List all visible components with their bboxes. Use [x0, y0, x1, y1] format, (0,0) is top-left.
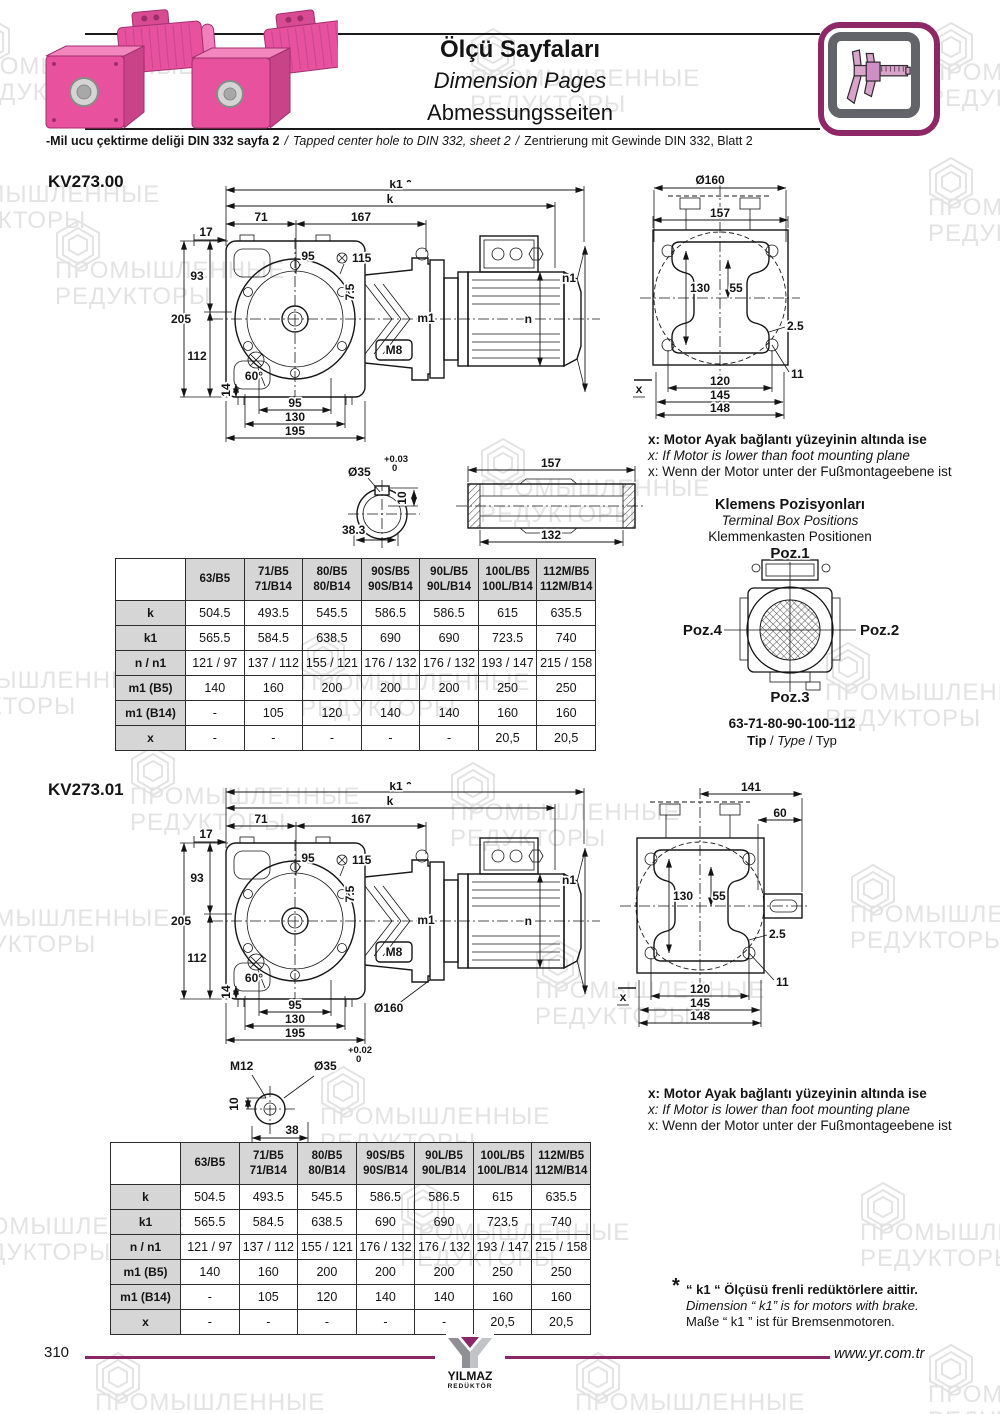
shaft-dimension-labels: +0.03 0 Ø35 10 38.3 157 132	[342, 454, 561, 542]
row-label-cell: x	[111, 1310, 181, 1335]
table-value-cell: 690	[415, 1210, 474, 1235]
footnote-star-marker: *	[406, 782, 412, 793]
header-note-german: Zentrierung mit Gewinde DIN 332, Blatt 2	[524, 134, 753, 148]
table-value-cell: 615	[478, 601, 537, 626]
column-header-line: 90L/B14	[415, 1164, 473, 1178]
shaft-details	[246, 1075, 314, 1142]
table-column-header: 71/B571/B14	[244, 559, 303, 601]
label-poz1: Poz.1	[770, 546, 809, 562]
column-header-line: 100L/B5	[479, 565, 537, 579]
dim-157: 157	[710, 206, 730, 220]
label-poz2: Poz.2	[860, 622, 899, 639]
table-head: 63/B571/B571/B1480/B580/B1490S/B590S/B14…	[111, 1143, 591, 1185]
dim-195: 195	[285, 424, 305, 438]
footer-rule-right	[505, 1356, 830, 1359]
column-header-line: 90S/B14	[362, 580, 420, 594]
watermark-text: ПРОМЫШЛЕННЫЕ	[95, 1390, 325, 1414]
column-header-line: 80/B14	[298, 1164, 356, 1178]
type-label-english: Type	[777, 733, 805, 748]
dim-157: 157	[541, 456, 561, 470]
table-row: m1 (B14)-105120140140160160	[116, 701, 596, 726]
dim-60deg: 60°	[245, 971, 263, 985]
table-value-cell: 215 / 158	[532, 1235, 591, 1260]
table-column-header: 63/B5	[181, 1143, 240, 1185]
dim-148: 148	[690, 1009, 710, 1023]
watermark: ПРОМЫШЛЕННЫЕРЕДУКТОРЫ	[850, 862, 1000, 954]
column-header-line: 71/B5	[240, 1149, 298, 1163]
table-value-cell: 160	[244, 676, 303, 701]
dim-dia35: Ø35	[314, 1059, 337, 1073]
dim-10: 10	[395, 491, 409, 505]
side-view-kv273-00: k1 * k 71 167 17 93 205 112 95 115 60° 7…	[168, 180, 608, 442]
table-value-cell: 493.5	[239, 1185, 298, 1210]
watermark-text: РЕДУКТОРЫ	[860, 1246, 1000, 1272]
row-label-cell: k	[111, 1185, 181, 1210]
website-url: www.yr.com.tr	[834, 1346, 925, 1362]
dim-11: 11	[791, 367, 804, 381]
table-row: k504.5493.5545.5586.5586.5615635.5	[116, 601, 596, 626]
table-value-cell: 160	[478, 701, 537, 726]
table-value-cell: 176 / 132	[361, 651, 420, 676]
dim-205: 205	[171, 914, 191, 928]
table-value-cell: 586.5	[356, 1185, 415, 1210]
row-label-cell: m1 (B14)	[111, 1285, 181, 1310]
table-value-cell: 120	[298, 1285, 357, 1310]
front-view-kv273-01: 141 60 130 55 2.5 11 120 145 148 x	[612, 782, 812, 1027]
dim-55: 55	[712, 889, 726, 903]
row-label-cell: m1 (B5)	[116, 676, 186, 701]
dim-k1: k1	[389, 180, 403, 191]
row-label-cell: k	[116, 601, 186, 626]
table-value-cell: 740	[532, 1210, 591, 1235]
table-column-header: 63/B5	[186, 559, 245, 601]
table-value-cell: 105	[244, 701, 303, 726]
brand-subname: REDÜKTÖR	[448, 1381, 493, 1390]
watermark-text: ПРОМЫШЛЕННЫЕ	[0, 906, 170, 932]
table-value-cell: 690	[356, 1210, 415, 1235]
terminal-box-heading: Klemens Pozisyonları Terminal Box Positi…	[640, 497, 940, 545]
k1-footnote: * “ k1 “ Ölçüsü frenli redüktörlere aitt…	[686, 1282, 919, 1330]
table-value-cell: 545.5	[303, 601, 362, 626]
table-value-cell: 493.5	[244, 601, 303, 626]
dimension-lines	[248, 1098, 308, 1138]
catalog-page: ПРОМЫШЛЕННЫЕРЕДУКТОРЫ ПРОМЫШЛЕННЫЕРЕДУКТ…	[0, 0, 1000, 1414]
table-column-header: 90L/B590L/B14	[420, 559, 479, 601]
table-row: x-----20,520,5	[111, 1310, 591, 1335]
table-row: m1 (B5)140160200200200250250	[111, 1260, 591, 1285]
header-note: -Mil ucu çektirme deliği DIN 332 sayfa 2…	[46, 134, 753, 148]
motor-note-german: x: Wenn der Motor unter der Fußmontageeb…	[648, 464, 952, 480]
table-column-header: 90L/B590L/B14	[415, 1143, 474, 1185]
centerlines	[348, 480, 646, 548]
footnote-star-marker: *	[406, 180, 412, 191]
table-value-cell: 121 / 97	[186, 651, 245, 676]
side-view-dimension-labels: k1 * k 71 167 17 93 205 112 95 115 60° 7…	[171, 180, 576, 438]
row-label-cell: n / n1	[111, 1235, 181, 1260]
table-value-cell: -	[420, 726, 479, 751]
table-value-cell: 584.5	[239, 1210, 298, 1235]
column-header-line: 71/B5	[245, 565, 303, 579]
table-value-cell: 690	[361, 626, 420, 651]
dim-10: 10	[227, 1097, 241, 1111]
separator: /	[511, 134, 524, 148]
table-value-cell: -	[186, 701, 245, 726]
dim-dia35: Ø35	[348, 465, 371, 479]
caliper-icon-frame	[818, 22, 940, 136]
table-row: x-----20,520,5	[116, 726, 596, 751]
dim-n: n	[525, 914, 532, 928]
dim-dia160: Ø160	[374, 1001, 404, 1015]
model-heading-kv273-01: KV273.01	[48, 780, 124, 800]
dim-130: 130	[285, 410, 305, 424]
front-view-kv273-00: Ø160 157 130 55 2.5 11 120 145 148 x	[628, 172, 813, 422]
front-view-outline	[634, 230, 788, 380]
table-value-cell: 200	[303, 676, 362, 701]
table-value-cell: 176 / 132	[415, 1235, 474, 1260]
column-header-line: 100L/B5	[474, 1149, 532, 1163]
table-value-cell: 586.5	[415, 1185, 474, 1210]
table-value-cell: 140	[361, 701, 420, 726]
table-column-header: 90S/B590S/B14	[356, 1143, 415, 1185]
column-header-line: 112M/B14	[537, 580, 595, 594]
dim-n: n	[525, 312, 532, 326]
table-value-cell: 740	[537, 626, 596, 651]
dim-n1: n1	[562, 873, 576, 887]
motor-note-turkish: x: Motor Ayak bağlantı yüzeyinin altında…	[648, 432, 952, 448]
terminal-box-title-german: Klemmenkasten Positionen	[640, 529, 940, 545]
shaft-dimension-labels: M12 +0.02 0 Ø35 10 38	[227, 1045, 372, 1137]
row-label-cell: m1 (B14)	[116, 701, 186, 726]
terminal-box-title-english: Terminal Box Positions	[640, 513, 940, 529]
dim-x: x	[620, 990, 627, 1004]
footnote-turkish: “ k1 “ Ölçüsü frenli redüktörlere aittir…	[686, 1282, 919, 1298]
table-value-cell: 176 / 132	[356, 1235, 415, 1260]
column-header-line: 80/B5	[298, 1149, 356, 1163]
dim-60deg: 60°	[245, 369, 263, 383]
page-title-turkish: Ölçü Sayfaları	[320, 36, 720, 64]
dim-141: 141	[741, 782, 761, 794]
terminal-box-positions-diagram: Poz.1 Poz.2 Poz.3 Poz.4	[660, 546, 960, 704]
side-view-dimension-labels: k1 * k 71 167 17 93 205 112 95 115 60° 7…	[171, 782, 576, 1040]
table-value-cell: 200	[356, 1260, 415, 1285]
dim-m8: M8	[386, 945, 403, 959]
watermark: ПРОМЫШЛЕННЫЕРЕДУКТОРЫ	[0, 866, 170, 958]
column-header-line: 90L/B5	[415, 1149, 473, 1163]
footnote-english: Dimension “ k1” is for motors with brake…	[686, 1298, 919, 1314]
table-value-cell: 723.5	[473, 1210, 532, 1235]
column-header-line: 100L/B14	[474, 1164, 532, 1178]
dim-95-bolt-circle: 95	[301, 249, 315, 263]
table-row: k1565.5584.5638.5690690723.5740	[111, 1210, 591, 1235]
column-header-line: 71/B14	[245, 580, 303, 594]
table-value-cell: 160	[239, 1260, 298, 1285]
table-row: n / n1121 / 97137 / 112155 / 121176 / 13…	[116, 651, 596, 676]
column-header-line: 100L/B14	[479, 580, 537, 594]
row-label-cell: n / n1	[116, 651, 186, 676]
footer-rule-left	[85, 1356, 435, 1359]
table-value-cell: 690	[420, 626, 479, 651]
column-header-line: 90L/B5	[420, 565, 478, 579]
dim-195: 195	[285, 1026, 305, 1040]
dim-130: 130	[690, 281, 710, 295]
column-header-line: 80/B5	[303, 565, 361, 579]
table-row: m1 (B14)-105120140140160160	[111, 1285, 591, 1310]
shaft-detail-kv273-00: +0.03 0 Ø35 10 38.3 157 132	[340, 452, 650, 552]
watermark-text: РЕДУКТОРЫ	[928, 221, 1000, 247]
row-label-cell: m1 (B5)	[111, 1260, 181, 1285]
watermark-text: ПРОМЫШЛЕННЫЕ	[928, 195, 1000, 221]
table-value-cell: -	[298, 1310, 357, 1335]
table-body: k504.5493.5545.5586.5586.5615635.5k1565.…	[116, 601, 596, 751]
table-value-cell: 586.5	[361, 601, 420, 626]
table-value-cell: 545.5	[298, 1185, 357, 1210]
dim-m8: M8	[386, 343, 403, 357]
dim-145: 145	[710, 388, 730, 402]
dim-95-bottom: 95	[288, 396, 302, 410]
gearmotor-photo	[192, 8, 338, 128]
watermark: ПРОМЫШЛЕННЫЕРЕДУКТОРЫ	[928, 155, 1000, 247]
table-value-cell: 140	[356, 1285, 415, 1310]
watermark-text: ПРОМЫШЛЕННЫЕ	[575, 1390, 805, 1414]
dim-115: 115	[352, 853, 372, 867]
table-value-cell: 586.5	[420, 601, 479, 626]
motor-note-english: x: If Motor is lower than foot mounting …	[648, 1102, 952, 1118]
dim-95-bolt-circle: 95	[301, 851, 315, 865]
caliper-icon-inner-frame	[828, 32, 920, 118]
table-value-cell: -	[303, 726, 362, 751]
table-value-cell: 638.5	[303, 626, 362, 651]
dim-k: k	[387, 794, 394, 808]
table-value-cell: 504.5	[186, 601, 245, 626]
column-header-line: 112M/B5	[537, 565, 595, 579]
column-header-line: 90S/B14	[357, 1164, 415, 1178]
table-value-cell: -	[244, 726, 303, 751]
table-value-cell: 565.5	[186, 626, 245, 651]
separator: /	[770, 733, 774, 748]
motor-note-german: x: Wenn der Motor unter der Fußmontageeb…	[648, 1118, 952, 1134]
table-row: n / n1121 / 97137 / 112155 / 121176 / 13…	[111, 1235, 591, 1260]
table-value-cell: -	[181, 1310, 240, 1335]
dim-k1: k1	[389, 782, 403, 793]
dim-7-5: 7.5	[343, 283, 357, 300]
column-header-line: 90L/B14	[420, 580, 478, 594]
tolerance-lower: 0	[392, 463, 397, 474]
table-row: k504.5493.5545.5586.5586.5615635.5	[111, 1185, 591, 1210]
dim-17: 17	[199, 225, 213, 239]
table-value-cell: 635.5	[532, 1185, 591, 1210]
watermark-text: РЕДУКТОРЫ	[0, 932, 170, 958]
table-column-header: 80/B580/B14	[298, 1143, 357, 1185]
motor-note-turkish: x: Motor Ayak bağlantı yüzeyinin altında…	[648, 1086, 952, 1102]
dim-115: 115	[352, 251, 372, 265]
dim-112: 112	[187, 349, 207, 363]
dim-m12: M12	[230, 1059, 254, 1073]
table-head: 63/B571/B571/B1480/B580/B1490S/B590S/B14…	[116, 559, 596, 601]
gearmotor-photos	[38, 8, 338, 136]
label-poz4: Poz.4	[683, 622, 723, 639]
table-value-cell: 250	[532, 1260, 591, 1285]
dim-95-bottom: 95	[288, 998, 302, 1012]
table-value-cell: 635.5	[537, 601, 596, 626]
motor-details	[724, 562, 856, 692]
dim-x: x	[636, 382, 643, 396]
dim-2-5: 2.5	[769, 927, 786, 941]
shaft-detail-kv273-01: M12 +0.02 0 Ø35 10 38	[222, 1042, 432, 1144]
dim-167: 167	[351, 812, 371, 826]
table-value-cell: 20,5	[532, 1310, 591, 1335]
watermark: ПРОМЫШЛЕННЫЕРЕДУКТОРЫ	[95, 1350, 325, 1414]
table-column-header: 100L/B5100L/B14	[478, 559, 537, 601]
dim-145: 145	[690, 996, 710, 1010]
page-title-german: Abmessungsseiten	[320, 100, 720, 126]
dim-205: 205	[171, 312, 191, 326]
watermark-text: РЕДУКТОРЫ	[928, 1408, 1000, 1414]
watermark-text: РЕДУКТОРЫ	[850, 928, 1000, 954]
table-header-row: 63/B571/B571/B1480/B580/B1490S/B590S/B14…	[111, 1143, 591, 1185]
table-value-cell: 140	[181, 1260, 240, 1285]
table-value-cell: 215 / 158	[537, 651, 596, 676]
table-row: m1 (B5)140160200200200250250	[116, 676, 596, 701]
dim-38-3: 38.3	[342, 523, 366, 537]
dim-60: 60	[773, 806, 787, 820]
table-value-cell: 200	[361, 676, 420, 701]
dim-17: 17	[199, 827, 213, 841]
model-heading-kv273-00: KV273.00	[48, 172, 124, 192]
table-value-cell: 160	[473, 1285, 532, 1310]
dim-132: 132	[541, 528, 561, 542]
table-body: k504.5493.5545.5586.5586.5615635.5k1565.…	[111, 1185, 591, 1335]
table-value-cell: -	[361, 726, 420, 751]
watermark-text: ПРОМЫШЛЕННЫЕ	[928, 1382, 1000, 1408]
table-value-cell: 504.5	[181, 1185, 240, 1210]
table-value-cell: 250	[473, 1260, 532, 1285]
dim-m1: m1	[417, 913, 435, 927]
table-column-header: 100L/B5100L/B14	[473, 1143, 532, 1185]
dim-93: 93	[190, 269, 204, 283]
table-value-cell: 20,5	[537, 726, 596, 751]
table-column-header: 112M/B5112M/B14	[537, 559, 596, 601]
table-value-cell: 160	[537, 701, 596, 726]
column-header-line: 80/B14	[303, 580, 361, 594]
side-view-kv273-01: k1 * k 71 167 17 93 205 112 95 115 60° 7…	[168, 782, 608, 1044]
dim-93: 93	[190, 871, 204, 885]
table-column-header: 80/B580/B14	[303, 559, 362, 601]
table-value-cell: 140	[186, 676, 245, 701]
footnote-star: *	[672, 1278, 680, 1294]
table-column-header: 90S/B590S/B14	[361, 559, 420, 601]
table-value-cell: 638.5	[298, 1210, 357, 1235]
table-header-row: 63/B571/B571/B1480/B580/B1490S/B590S/B14…	[116, 559, 596, 601]
table-value-cell: 193 / 147	[473, 1235, 532, 1260]
table-value-cell: 120	[303, 701, 362, 726]
column-header-line: 90S/B5	[357, 1149, 415, 1163]
type-label-german: Typ	[816, 733, 837, 748]
header-note-english: Tapped center hole to DIN 332, sheet 2	[293, 134, 511, 148]
table-value-cell: 723.5	[478, 626, 537, 651]
watermark-text: ПРОМЫШЛЕННЫЕ	[860, 1220, 1000, 1246]
table-value-cell: 615	[473, 1185, 532, 1210]
brand-logo: YILMAZ REDÜKTÖR	[436, 1328, 504, 1390]
table-value-cell: 584.5	[244, 626, 303, 651]
watermark: ПРОМЫШЛЕННЫЕРЕДУКТОРЫ	[928, 1342, 1000, 1414]
terminal-box-type-line: Tip / Type / Typ	[667, 733, 917, 748]
table-value-cell: -	[181, 1285, 240, 1310]
table-value-cell: 140	[415, 1285, 474, 1310]
separator: /	[809, 733, 813, 748]
dim-130: 130	[673, 889, 693, 903]
dim-k: k	[387, 192, 394, 206]
caliper-icon	[837, 38, 911, 112]
gearmotor-photo	[46, 8, 217, 128]
table-value-cell: 250	[537, 676, 596, 701]
table-value-cell: 193 / 147	[478, 651, 537, 676]
watermark-text: ПРОМЫШЛЕННЫЕ	[850, 902, 1000, 928]
dim-2-5: 2.5	[787, 319, 804, 333]
dim-71: 71	[254, 812, 268, 826]
brand-name: YILMAZ	[448, 1369, 493, 1383]
page-title-english: Dimension Pages	[320, 68, 720, 94]
table-value-cell: -	[186, 726, 245, 751]
watermark: ПРОМЫШЛЕННЫЕРЕДУКТОРЫ	[860, 1180, 1000, 1272]
dimension-table-kv273-01: 63/B571/B571/B1480/B580/B1490S/B590S/B14…	[110, 1142, 591, 1335]
table-value-cell: 200	[420, 676, 479, 701]
table-value-cell: 250	[478, 676, 537, 701]
tolerance-lower: 0	[356, 1054, 361, 1065]
row-label-cell: k1	[111, 1210, 181, 1235]
table-value-cell: 137 / 112	[239, 1235, 298, 1260]
motor-position-note-kv273-01: x: Motor Ayak bağlantı yüzeyinin altında…	[648, 1086, 952, 1134]
header-note-turkish: -Mil ucu çektirme deliği DIN 332 sayfa 2	[46, 134, 279, 148]
page-title: Ölçü Sayfaları Dimension Pages Abmessung…	[320, 36, 720, 126]
column-header-line: 63/B5	[181, 1156, 239, 1170]
table-value-cell: 140	[420, 701, 479, 726]
column-header-line: 71/B14	[240, 1164, 298, 1178]
dim-dia160: Ø160	[695, 173, 725, 187]
table-value-cell: 200	[415, 1260, 474, 1285]
dim-14: 14	[219, 383, 233, 397]
label-poz3: Poz.3	[770, 689, 809, 704]
table-value-cell: -	[239, 1310, 298, 1335]
column-header-line: 112M/B5	[532, 1149, 590, 1163]
dim-71: 71	[254, 210, 268, 224]
column-header-line: 112M/B14	[532, 1164, 590, 1178]
dimension-table-kv273-00: 63/B571/B571/B1480/B580/B1490S/B590S/B14…	[115, 558, 596, 751]
dim-38: 38	[285, 1123, 299, 1137]
dim-120: 120	[710, 374, 730, 388]
column-header-line: 90S/B5	[362, 565, 420, 579]
table-value-cell: 137 / 112	[244, 651, 303, 676]
dim-130: 130	[285, 1012, 305, 1026]
row-label-cell: k1	[116, 626, 186, 651]
table-corner-cell	[111, 1143, 181, 1185]
table-value-cell: 20,5	[478, 726, 537, 751]
terminal-box-title-turkish: Klemens Pozisyonları	[640, 497, 940, 513]
table-column-header: 112M/B5112M/B14	[532, 1143, 591, 1185]
motor-position-note-kv273-00: x: Motor Ayak bağlantı yüzeyinin altında…	[648, 432, 952, 480]
dim-120: 120	[690, 982, 710, 996]
table-value-cell: 121 / 97	[181, 1235, 240, 1260]
table-corner-cell	[116, 559, 186, 601]
separator: /	[279, 134, 292, 148]
table-column-header: 71/B571/B14	[239, 1143, 298, 1185]
table-row: k1565.5584.5638.5690690723.5740	[116, 626, 596, 651]
dim-112: 112	[187, 951, 207, 965]
table-value-cell: 105	[239, 1285, 298, 1310]
table-value-cell: -	[356, 1310, 415, 1335]
dim-11: 11	[776, 975, 789, 989]
dim-7-5: 7.5	[343, 885, 357, 902]
table-value-cell: 565.5	[181, 1210, 240, 1235]
